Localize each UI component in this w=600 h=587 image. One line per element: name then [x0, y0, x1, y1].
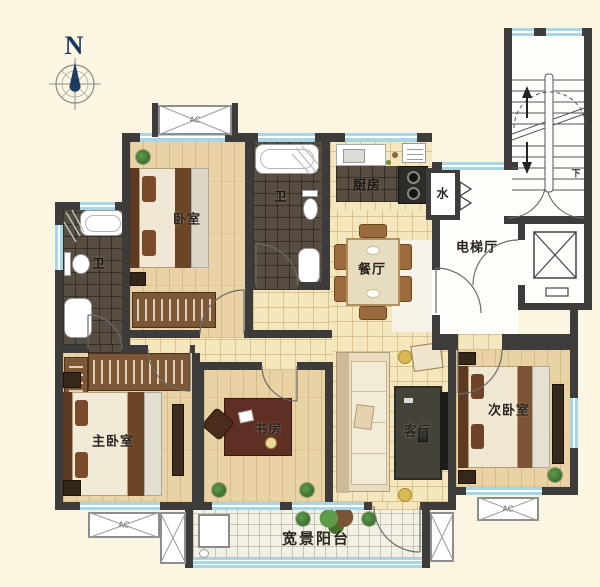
entry-door-gap: [432, 268, 440, 315]
window: [512, 28, 534, 36]
washing-machine: [198, 514, 230, 548]
floor-stairwell: [512, 36, 584, 216]
window: [80, 502, 160, 510]
window: [442, 162, 504, 170]
pillow: [75, 400, 88, 426]
tv-cabinet: [172, 404, 184, 476]
sofa-pillow: [353, 404, 374, 430]
ac-label: AC: [116, 521, 131, 530]
floor-elevator: [525, 224, 584, 303]
pillow: [142, 230, 156, 256]
range-hood: [402, 143, 426, 163]
plant: [362, 512, 376, 526]
nightstand: [63, 372, 81, 388]
floor-lamp: [398, 350, 412, 364]
toilet-tank: [64, 252, 71, 276]
pillow: [75, 452, 88, 478]
sink: [343, 149, 365, 163]
dining-chair: [359, 224, 387, 238]
plant: [300, 483, 314, 497]
window: [80, 202, 115, 210]
jar: [392, 152, 398, 158]
ac-unit: AC: [158, 105, 232, 135]
window: [546, 28, 582, 36]
plant: [136, 150, 150, 164]
room-label-bath-top: 卫: [274, 188, 287, 205]
floor-balcony-door-patch: [372, 502, 420, 510]
room-label-living: 客厅: [404, 421, 432, 440]
pillow: [471, 374, 484, 399]
floor-lamp: [398, 488, 412, 502]
dining-chair: [398, 244, 412, 270]
sofa: [336, 352, 390, 492]
room-label-bedroom: 卧室: [173, 209, 201, 228]
ac-unit: AC: [477, 497, 539, 521]
window: [212, 502, 280, 510]
tv-cabinet: [552, 384, 564, 464]
window: [55, 225, 63, 270]
stove: [398, 166, 428, 204]
bed-blanket: [532, 366, 550, 468]
room-label-elevator-hall: 电梯厅: [456, 237, 498, 256]
room-label-bath-left: 卫: [92, 255, 105, 272]
window: [292, 502, 364, 510]
pillow: [142, 176, 156, 202]
room-label-kitchen: 厨房: [353, 175, 381, 194]
window: [258, 133, 315, 142]
wardrobe: [88, 353, 190, 391]
bed-blanket: [144, 392, 162, 496]
stairs-down-label: 下: [571, 167, 580, 180]
shower-tray: [298, 248, 320, 284]
room-label-dining: 餐厅: [358, 259, 386, 278]
ac-unit: [160, 512, 186, 564]
compass-needle: [70, 62, 81, 92]
plant: [296, 512, 310, 526]
floor-bath-left-door: [88, 345, 122, 353]
ac-label: AC: [187, 116, 202, 125]
room-label-study: 书房: [254, 419, 282, 438]
room-label-master-bedroom: 主卧室: [92, 431, 134, 450]
bathtub: [255, 144, 319, 174]
balcony-window: [193, 558, 422, 568]
nightstand: [130, 272, 146, 286]
pillow: [471, 424, 484, 449]
compass-north-label: N: [65, 31, 84, 61]
toilet: [303, 198, 318, 220]
room-label-secondary-bedroom: 次卧室: [488, 400, 530, 419]
bathtub: [80, 210, 124, 236]
plant: [548, 468, 562, 482]
floor-drain: [199, 549, 209, 558]
bed-headboard: [458, 366, 468, 468]
compass-rose: [49, 58, 101, 110]
floor-plan: AC AC AC: [0, 0, 600, 587]
floor-door-patch: [458, 334, 502, 350]
ac-unit: [430, 512, 454, 562]
wardrobe: [132, 292, 216, 328]
desk-lamp: [265, 437, 277, 449]
window: [466, 487, 542, 495]
toilet: [72, 254, 90, 274]
paper: [238, 410, 254, 424]
plant: [212, 483, 226, 497]
toilet-tank: [302, 190, 318, 197]
elevator-door-gap: [518, 240, 525, 285]
kitchen-counter: [336, 144, 386, 166]
window: [345, 133, 417, 142]
dining-chair: [359, 306, 387, 320]
jar: [386, 160, 391, 165]
ac-label: AC: [500, 505, 515, 514]
nightstand: [458, 352, 476, 365]
room-label-water: 水: [436, 185, 449, 202]
nightstand: [63, 480, 81, 496]
washbasin: [64, 298, 92, 338]
bed-headboard: [130, 168, 139, 268]
nightstand: [458, 470, 476, 484]
dining-chair: [398, 276, 412, 302]
ac-unit: AC: [88, 512, 160, 538]
tv: [440, 392, 448, 470]
room-label-balcony: 宽景阳台: [282, 528, 350, 549]
window: [570, 398, 578, 448]
